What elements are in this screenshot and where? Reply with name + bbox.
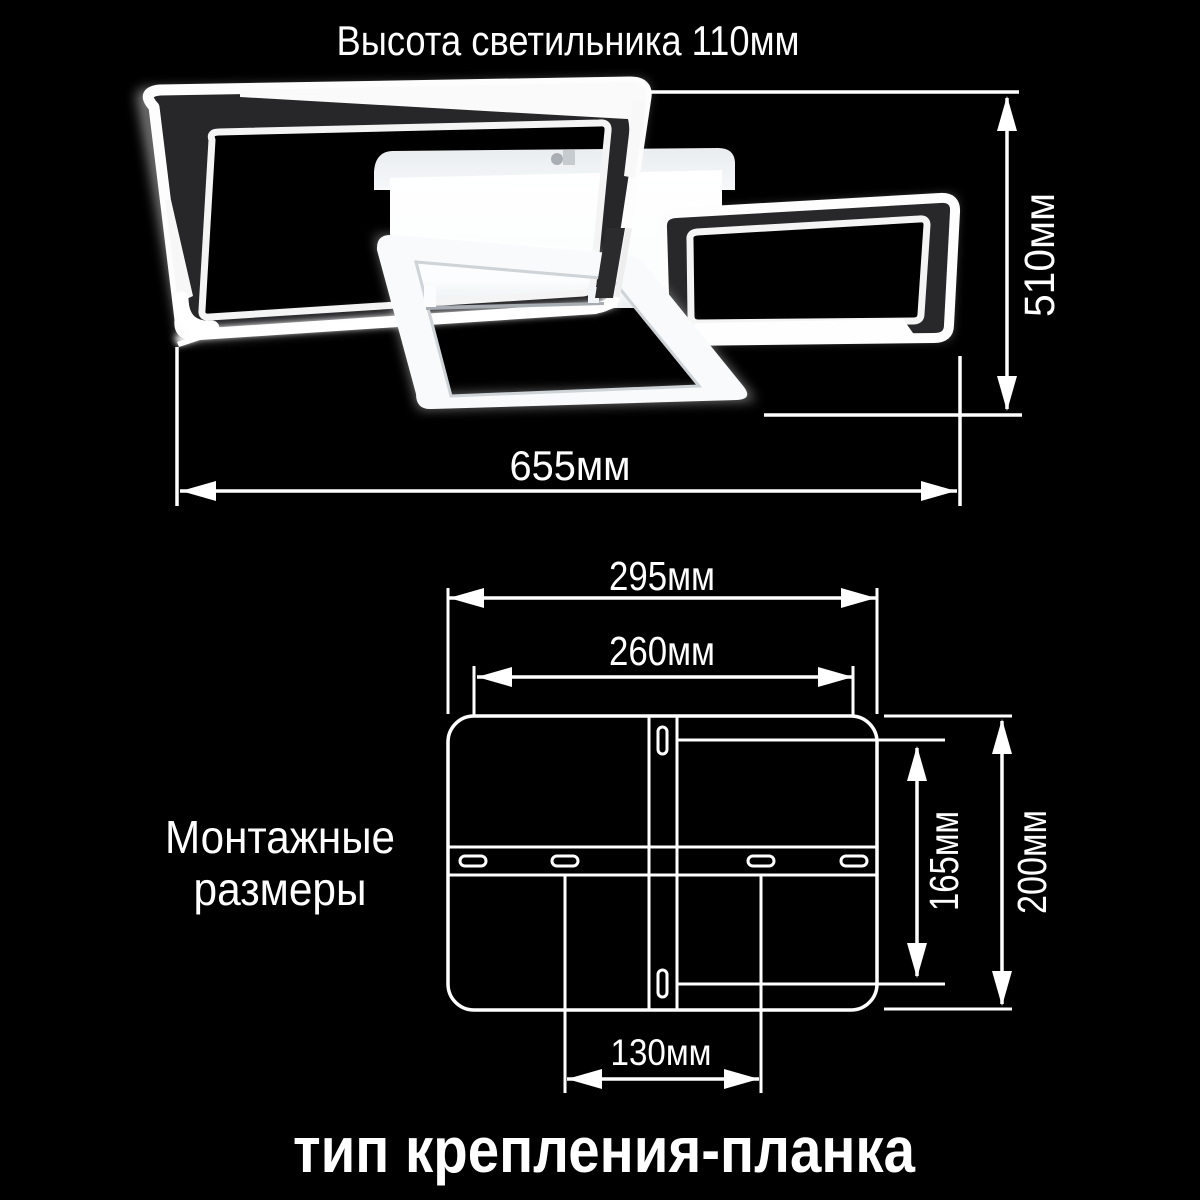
- svg-text:295мм: 295мм: [609, 553, 715, 599]
- svg-text:655мм: 655мм: [510, 442, 631, 489]
- svg-text:Высота светильника 110мм: Высота светильника 110мм: [337, 17, 800, 64]
- svg-text:Монтажные: Монтажные: [165, 811, 395, 863]
- svg-text:200мм: 200мм: [1009, 810, 1055, 914]
- svg-text:260мм: 260мм: [609, 628, 715, 674]
- svg-text:510мм: 510мм: [1016, 193, 1064, 317]
- svg-text:165мм: 165мм: [921, 811, 967, 911]
- svg-text:тип крепления-планка: тип крепления-планка: [293, 1114, 915, 1186]
- svg-text:130мм: 130мм: [611, 1032, 712, 1073]
- svg-text:размеры: размеры: [194, 863, 367, 915]
